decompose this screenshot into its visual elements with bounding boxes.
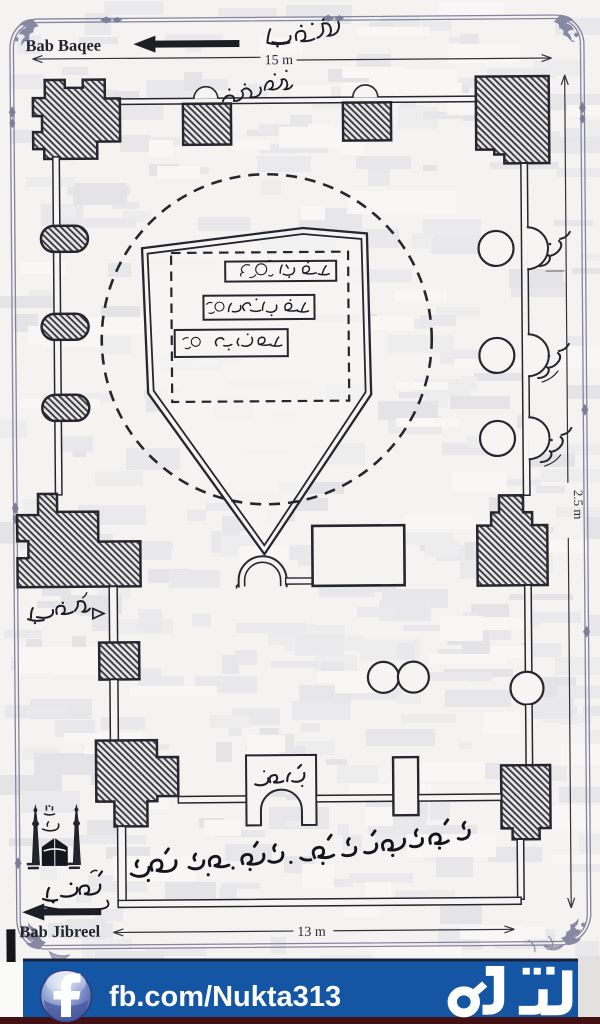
svg-text:Bab Baqee: Bab Baqee: [25, 36, 101, 56]
svg-text:fb.com/Nukta313: fb.com/Nukta313: [109, 981, 341, 1013]
svg-text:15 m: 15 m: [264, 53, 293, 68]
svg-text:Bab Jibreel: Bab Jibreel: [19, 922, 100, 942]
svg-text:2.5 m: 2.5 m: [571, 490, 586, 520]
svg-text:13 m: 13 m: [297, 925, 326, 940]
